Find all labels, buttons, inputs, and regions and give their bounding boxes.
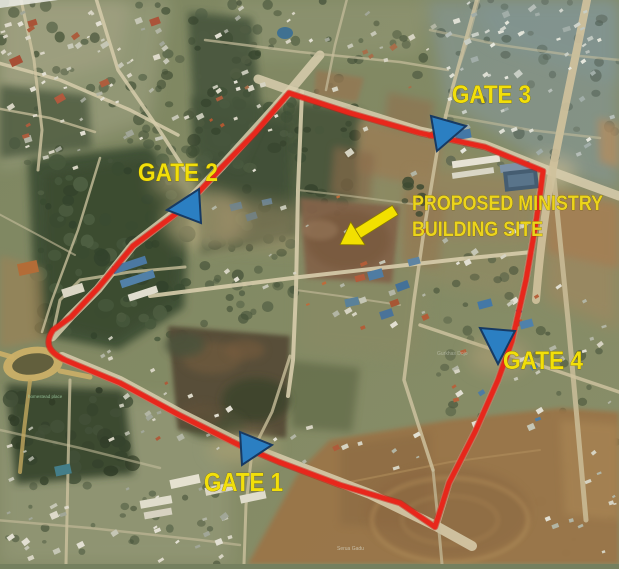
svg-text:GATE 2: GATE 2 <box>138 159 218 187</box>
svg-text:GATE 4: GATE 4 <box>503 347 583 375</box>
svg-text:GATE 3: GATE 3 <box>452 81 531 109</box>
svg-text:PROPOSED MINISTRY: PROPOSED MINISTRY <box>412 192 603 215</box>
svg-text:GATE 1: GATE 1 <box>204 467 283 497</box>
svg-text:BUILDING SITE: BUILDING SITE <box>412 218 543 241</box>
